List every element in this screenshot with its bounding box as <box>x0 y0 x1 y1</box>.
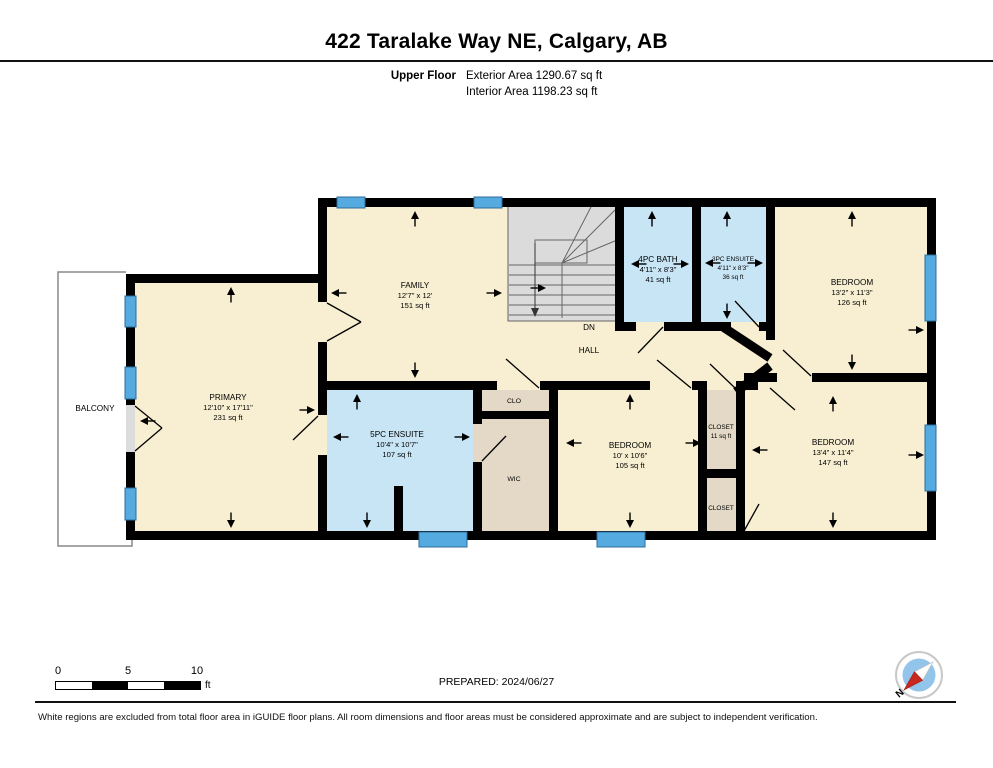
room-dims-bedroom-se: 13'4" x 11'4" <box>812 448 853 457</box>
room-area-3pc-ensuite: 36 sq ft <box>723 274 744 281</box>
disclaimer-text: White regions are excluded from total fl… <box>38 712 973 723</box>
header-divider <box>0 60 993 62</box>
room-area-primary: 231 sq ft <box>213 413 243 422</box>
room-label-bedroom-ne: BEDROOM <box>831 278 873 287</box>
clo-label: CLO <box>507 398 521 405</box>
closet1-label: CLOSET <box>708 424 734 431</box>
room-area-4pc-bath: 41 sq ft <box>646 275 672 284</box>
wic-label: WIC <box>507 476 520 483</box>
room-label-primary: PRIMARY <box>209 393 247 402</box>
prepared-date: PREPARED: 2024/06/27 <box>0 676 993 688</box>
interior-area: Interior Area 1198.23 sq ft <box>466 84 602 100</box>
room-area-bedroom-mid: 105 sq ft <box>615 461 645 470</box>
floor-label: Upper Floor <box>391 68 456 100</box>
room-dims-5pc-ensuite: 10'4" x 10'7" <box>376 440 418 449</box>
hall-label: HALL <box>579 346 600 355</box>
floor-summary: Upper Floor Exterior Area 1290.67 sq ft … <box>0 68 993 100</box>
room-dims-bedroom-ne: 13'2" x 11'3" <box>831 288 872 297</box>
compass-icon: N <box>893 650 947 704</box>
room-dims-primary: 12'10" x 17'11" <box>203 403 253 412</box>
room-label-bedroom-se: BEDROOM <box>812 438 854 447</box>
room-area-bedroom-se: 147 sq ft <box>818 458 848 467</box>
room-fills <box>126 198 936 540</box>
closet1-area: 11 sq ft <box>711 433 732 440</box>
room-label-family: FAMILY <box>401 281 430 290</box>
closet2-label: CLOSET <box>708 505 734 512</box>
room-label-bedroom-mid: BEDROOM <box>609 441 651 450</box>
page-title: 422 Taralake Way NE, Calgary, AB <box>0 30 993 54</box>
footer-divider <box>35 701 956 703</box>
room-label-5pc-ensuite: 5PC ENSUITE <box>370 430 424 439</box>
room-area-5pc-ensuite: 107 sq ft <box>382 450 412 459</box>
floorplan-page: 422 Taralake Way NE, Calgary, AB Upper F… <box>0 0 993 768</box>
balcony-label: BALCONY <box>75 404 115 413</box>
room-dims-3pc-ensuite: 4'11" x 8'3" <box>717 265 748 272</box>
exterior-area: Exterior Area 1290.67 sq ft <box>466 68 602 84</box>
room-label-4pc-bath: 4PC BATH <box>638 255 678 264</box>
room-dims-family: 12'7" x 12' <box>398 291 433 300</box>
room-area-family: 151 sq ft <box>400 301 430 310</box>
room-label-3pc-ensuite: 3PC ENSUITE <box>712 256 754 263</box>
room-dims-4pc-bath: 4'11" x 8'3" <box>640 265 677 274</box>
room-area-bedroom-ne: 126 sq ft <box>837 298 867 307</box>
floorplan-drawing: FAMILY 12'7" x 12' 151 sq ft PRIMARY 12'… <box>0 190 993 562</box>
stairs-dn-label: DN <box>583 323 595 332</box>
room-dims-bedroom-mid: 10' x 10'6" <box>613 451 648 460</box>
